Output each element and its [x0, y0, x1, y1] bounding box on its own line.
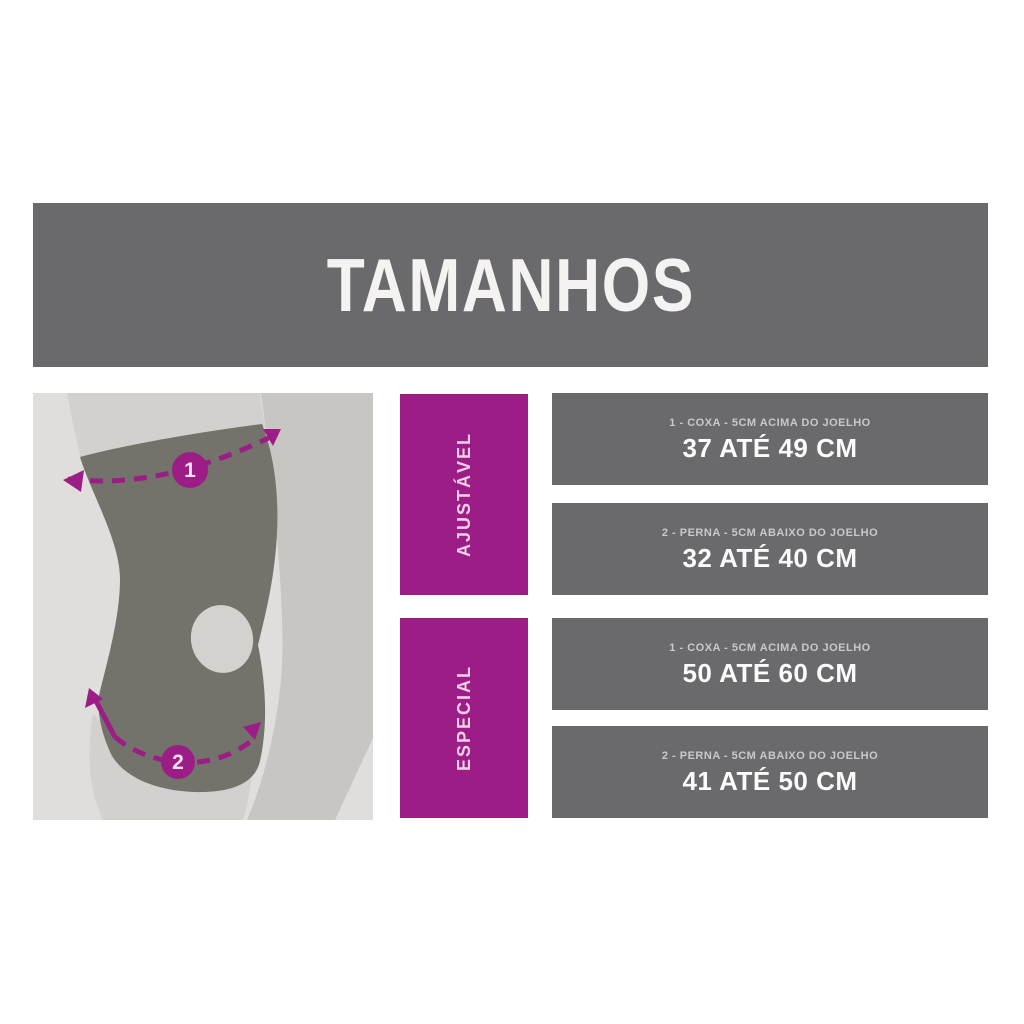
size-row-value: 41 ATÉ 50 CM	[682, 768, 857, 794]
size-row-especial-coxa: 1 - COXA - 5CM ACIMA DO JOELHO 50 ATÉ 60…	[552, 618, 988, 710]
knee-brace-diagram: 1 2	[33, 393, 373, 820]
size-row-ajustavel-perna: 2 - PERNA - 5CM ABAIXO DO JOELHO 32 ATÉ …	[552, 503, 988, 595]
group-label-especial: ESPECIAL	[400, 618, 528, 818]
marker-2-label: 2	[172, 751, 184, 774]
size-row-value: 32 ATÉ 40 CM	[682, 545, 857, 571]
group-label-ajustavel: AJUSTÁVEL	[400, 394, 528, 595]
title-banner: TAMANHOS	[33, 203, 988, 367]
size-row-caption: 2 - PERNA - 5CM ABAIXO DO JOELHO	[662, 527, 878, 539]
size-row-value: 37 ATÉ 49 CM	[682, 435, 857, 461]
size-row-caption: 1 - COXA - 5CM ACIMA DO JOELHO	[669, 417, 870, 429]
size-row-caption: 1 - COXA - 5CM ACIMA DO JOELHO	[669, 642, 870, 654]
knee-brace-illustration: 1 2	[33, 393, 373, 820]
size-row-especial-perna: 2 - PERNA - 5CM ABAIXO DO JOELHO 41 ATÉ …	[552, 726, 988, 818]
marker-1-label: 1	[184, 459, 196, 482]
size-row-ajustavel-coxa: 1 - COXA - 5CM ACIMA DO JOELHO 37 ATÉ 49…	[552, 393, 988, 485]
group-label-especial-text: ESPECIAL	[454, 665, 475, 771]
size-row-value: 50 ATÉ 60 CM	[682, 660, 857, 686]
group-label-ajustavel-text: AJUSTÁVEL	[454, 432, 475, 557]
size-row-caption: 2 - PERNA - 5CM ABAIXO DO JOELHO	[662, 750, 878, 762]
page-title: TAMANHOS	[326, 248, 694, 323]
